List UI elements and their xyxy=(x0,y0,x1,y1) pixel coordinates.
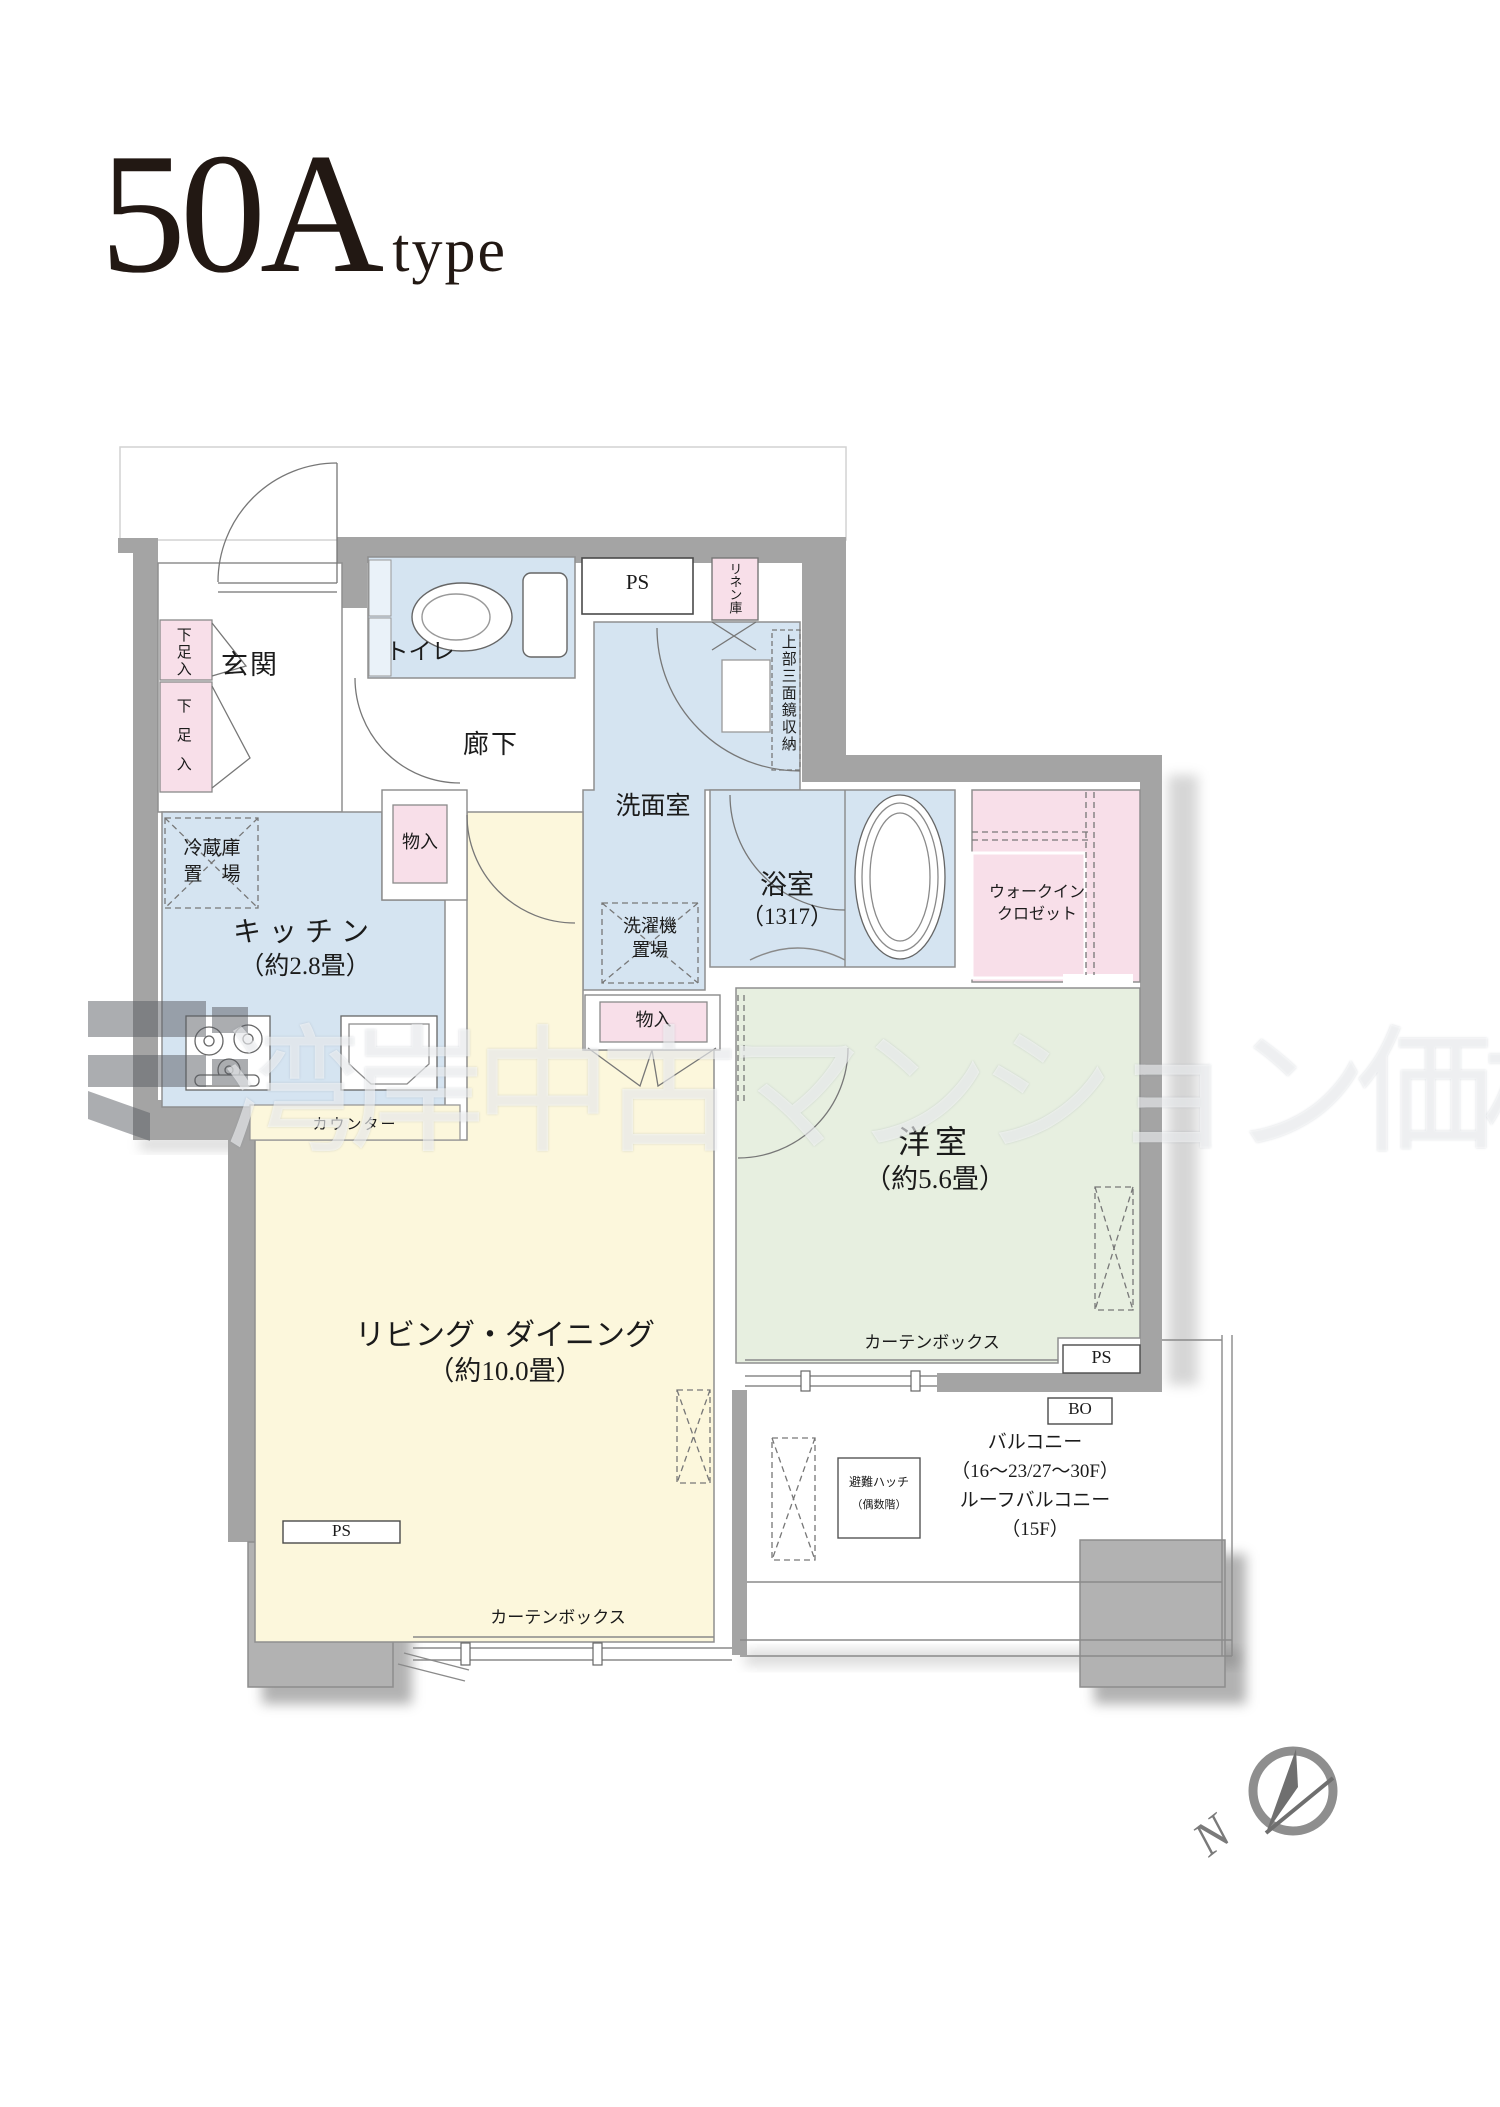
room-label-entrance: 玄関 xyxy=(190,650,310,682)
mirror-cabinet xyxy=(722,660,770,732)
room-label-hallway: 廊下 xyxy=(411,730,571,761)
fixture-label-bo: BO xyxy=(1048,1399,1112,1419)
floor-plan-drawing xyxy=(0,0,1500,2107)
stove-icon xyxy=(186,1016,270,1090)
storage-label-linen: リネン庫 xyxy=(727,562,742,614)
room-label-bathroom-size: （1317） xyxy=(707,903,867,930)
wall-shadow-right xyxy=(1168,775,1198,1385)
storage-label-washer-1: 洗濯機 xyxy=(602,916,698,937)
fixture-label-ps-top: PS xyxy=(582,570,693,595)
room-label-toilet: トイレ xyxy=(355,638,485,665)
room-label-kitchen-name: キッチン xyxy=(165,916,445,949)
storage-label-closet-hall: 物入 xyxy=(600,1010,707,1031)
fixture-label-ps-bedroom: PS xyxy=(1063,1347,1140,1368)
room-label-bedroom-size: （約5.6畳） xyxy=(790,1164,1080,1196)
room-label-bathroom-name: 浴室 xyxy=(707,870,867,902)
room-label-wic-1: ウォークイン xyxy=(952,884,1122,903)
fixture-label-counter: カウンター xyxy=(252,1117,458,1135)
compass-icon xyxy=(1253,1749,1333,1833)
floor-plan-page: 50A type xyxy=(0,0,1500,2107)
toilet-side-cabinet-1 xyxy=(369,560,391,616)
storage-label-washer-2: 置場 xyxy=(602,940,698,961)
room-label-washroom: 洗面室 xyxy=(573,792,733,822)
room-label-ld-size: （約10.0畳） xyxy=(330,1356,680,1388)
balcony-label-2: （16〜23/27〜30F） xyxy=(905,1461,1165,1483)
room-label-ld-name: リビング・ダイニング xyxy=(330,1318,680,1353)
balcony-label-1: バルコニー xyxy=(905,1432,1165,1454)
balcony-label-4: （15F） xyxy=(905,1519,1165,1541)
pillar-right xyxy=(1080,1540,1225,1687)
balcony-label-3: ルーフバルコニー xyxy=(905,1490,1165,1512)
bathtub-icon xyxy=(855,795,945,959)
storage-label-fridge-2: 置 場 xyxy=(166,864,258,886)
fixture-label-ps-living: PS xyxy=(283,1521,400,1541)
room-label-wic-2: クロゼット xyxy=(952,906,1122,925)
storage-label-fridge-1: 冷蔵庫 xyxy=(166,838,258,860)
storage-label-shoe-1: 下足入 xyxy=(173,627,191,678)
storage-label-shoe-2: 下足入 xyxy=(173,698,191,785)
sink-icon xyxy=(341,1016,437,1090)
room-label-kitchen-size: （約2.8畳） xyxy=(165,952,445,982)
fixture-label-curtain-living: カーテンボックス xyxy=(478,1608,638,1628)
storage-label-mirror: 上部三面鏡収納 xyxy=(778,634,796,753)
wic-door-gap xyxy=(1063,974,1133,987)
outside-corridor xyxy=(120,447,846,540)
storage-label-closet-kitchen: 物入 xyxy=(393,832,447,853)
room-label-bedroom-name: 洋室 xyxy=(790,1124,1080,1162)
fixture-label-curtain-bedroom: カーテンボックス xyxy=(862,1333,1002,1353)
